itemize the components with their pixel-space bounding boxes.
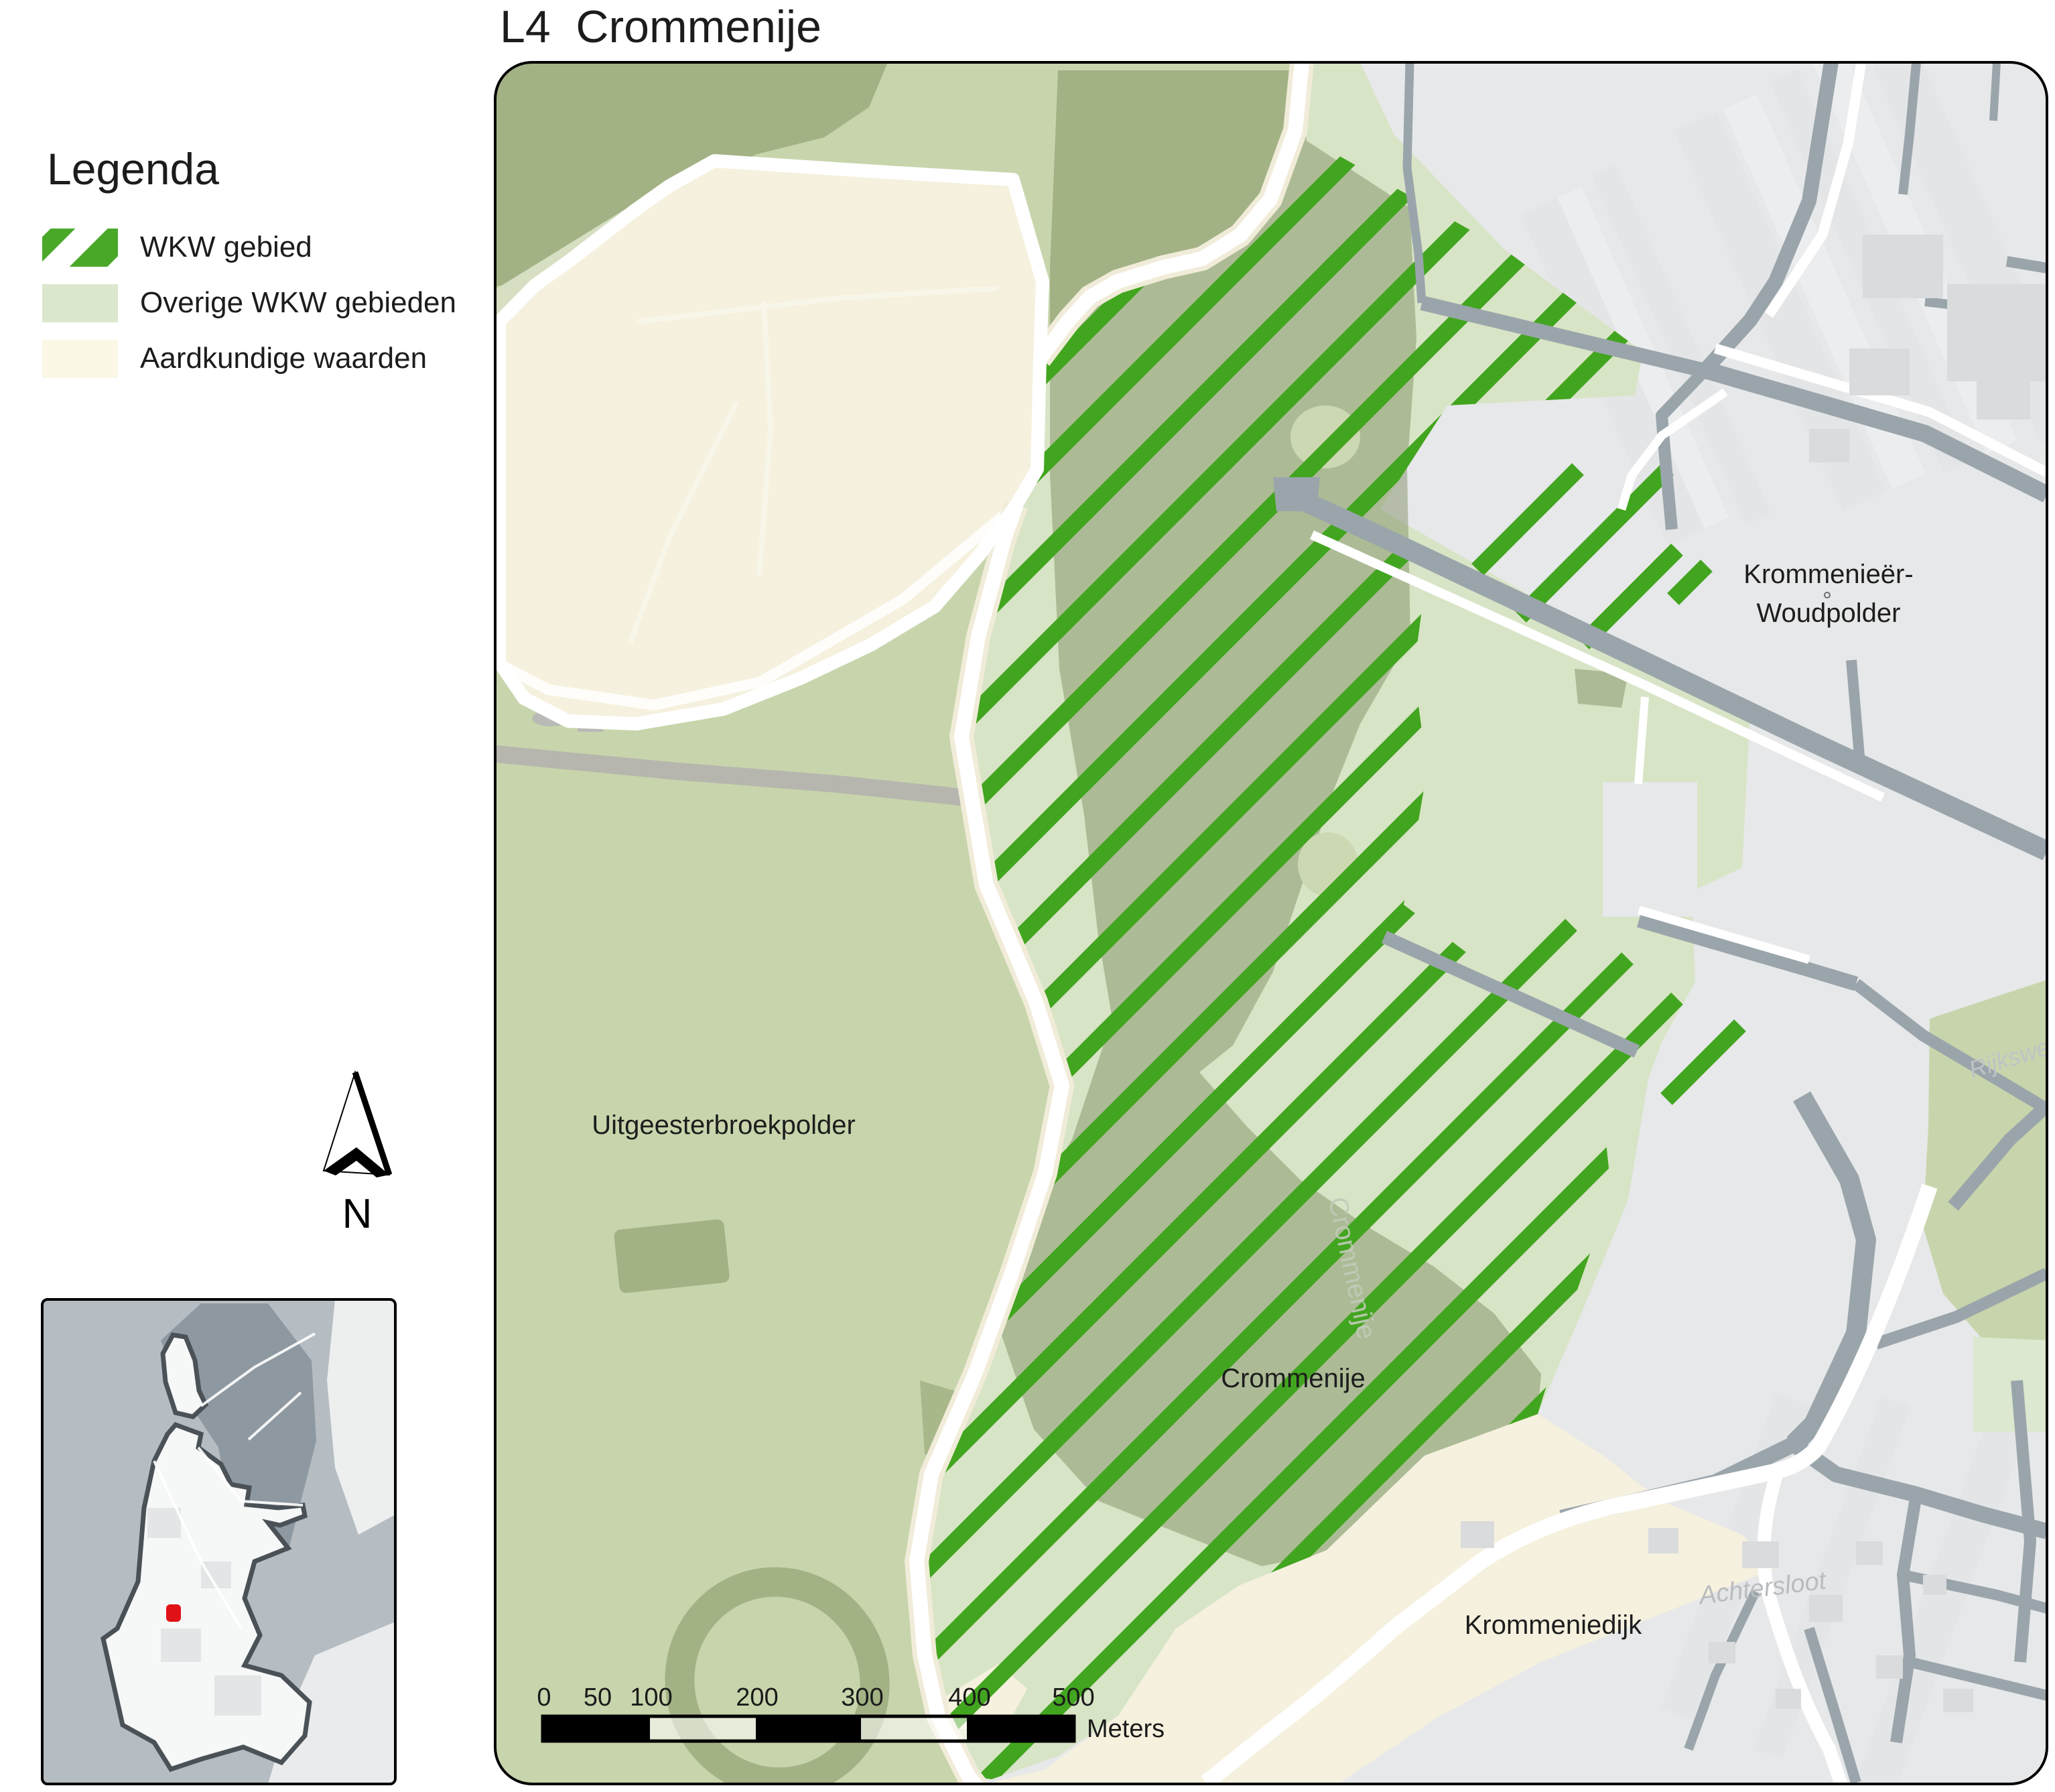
svg-text:WKW gebied: WKW gebied [140, 231, 312, 263]
svg-text:0: 0 [537, 1683, 551, 1712]
svg-text:400: 400 [948, 1683, 990, 1712]
svg-text:Crommenije: Crommenije [1221, 1364, 1366, 1393]
svg-text:Woudpolder: Woudpolder [1757, 598, 1901, 628]
svg-text:300: 300 [841, 1683, 883, 1712]
svg-text:100: 100 [630, 1683, 672, 1712]
svg-text:Aardkundige waarden: Aardkundige waarden [140, 342, 427, 375]
svg-text:Krommeniedijk: Krommeniedijk [1465, 1610, 1643, 1640]
svg-text:Uitgeesterbroekpolder: Uitgeesterbroekpolder [592, 1110, 856, 1140]
svg-text:Legenda: Legenda [47, 144, 219, 194]
svg-text:500: 500 [1052, 1683, 1094, 1712]
svg-text:Meters: Meters [1087, 1715, 1165, 1743]
svg-text:L4 Crommenije: L4 Crommenije [500, 1, 821, 52]
svg-text:N: N [342, 1191, 373, 1237]
svg-text:50: 50 [584, 1683, 612, 1712]
svg-text:200: 200 [736, 1683, 778, 1712]
svg-text:Krommenieër-: Krommenieër- [1743, 560, 1913, 589]
svg-text:Overige WKW gebieden: Overige WKW gebieden [140, 286, 456, 319]
